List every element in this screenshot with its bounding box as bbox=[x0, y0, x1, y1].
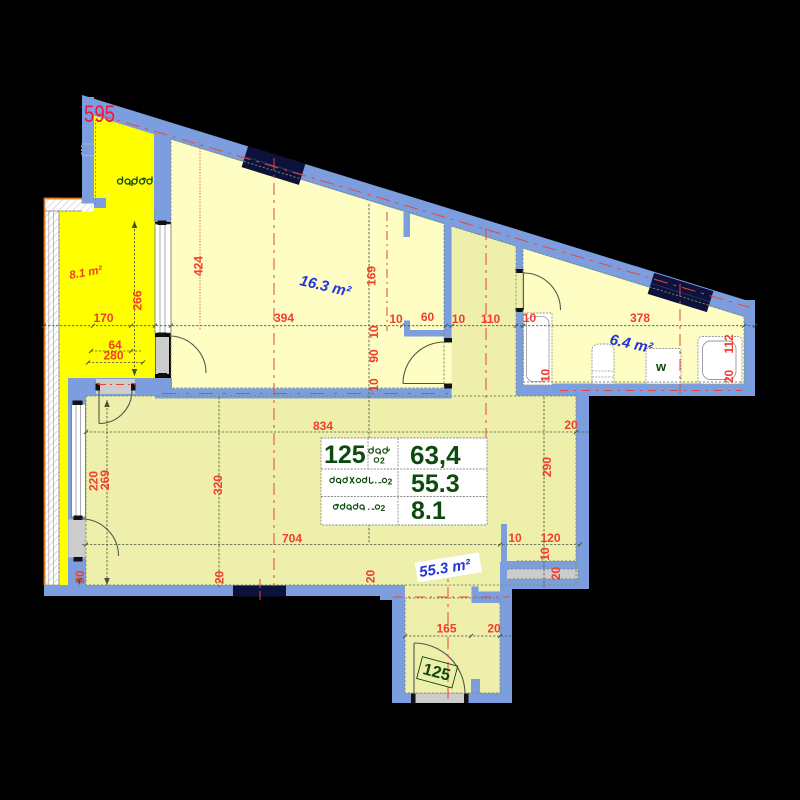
svg-text:165: 165 bbox=[436, 622, 456, 636]
svg-text:20: 20 bbox=[722, 370, 736, 384]
svg-text:10: 10 bbox=[367, 325, 381, 339]
svg-text:290: 290 bbox=[540, 457, 554, 477]
svg-text:424: 424 bbox=[192, 256, 206, 276]
svg-text:10: 10 bbox=[538, 547, 552, 561]
svg-text:394: 394 bbox=[274, 311, 294, 325]
svg-text:63,4: 63,4 bbox=[410, 440, 461, 470]
svg-text:2: 2 bbox=[388, 477, 393, 487]
svg-text:55.3: 55.3 bbox=[411, 470, 460, 498]
svg-text:10: 10 bbox=[367, 378, 381, 392]
svg-text:2: 2 bbox=[380, 456, 385, 466]
svg-text:20: 20 bbox=[564, 418, 578, 432]
svg-text:125: 125 bbox=[324, 441, 366, 469]
svg-text:8.1: 8.1 bbox=[411, 497, 446, 525]
svg-text:10: 10 bbox=[539, 369, 553, 383]
svg-text:834: 834 bbox=[313, 419, 333, 433]
svg-text:10: 10 bbox=[523, 311, 537, 325]
svg-text:266: 266 bbox=[131, 290, 145, 310]
svg-text:170: 170 bbox=[93, 311, 113, 325]
svg-text:20: 20 bbox=[549, 567, 563, 581]
svg-text:110: 110 bbox=[481, 312, 501, 326]
svg-text:112: 112 bbox=[722, 334, 736, 354]
svg-text:704: 704 bbox=[282, 532, 302, 546]
svg-text:90: 90 bbox=[367, 349, 381, 363]
svg-text:378: 378 bbox=[630, 311, 650, 325]
svg-text:269: 269 bbox=[98, 470, 112, 490]
svg-text:10: 10 bbox=[452, 312, 466, 326]
svg-text:320: 320 bbox=[211, 475, 225, 495]
svg-text:169: 169 bbox=[365, 266, 379, 286]
svg-text:10: 10 bbox=[508, 531, 522, 545]
svg-text:280: 280 bbox=[103, 349, 123, 363]
svg-text:w: w bbox=[655, 359, 667, 374]
svg-text:20: 20 bbox=[73, 570, 87, 584]
svg-text:10: 10 bbox=[389, 312, 403, 326]
svg-text:20: 20 bbox=[364, 570, 378, 584]
svg-text:20: 20 bbox=[213, 571, 227, 585]
svg-text:595: 595 bbox=[84, 101, 115, 128]
svg-text:120: 120 bbox=[540, 531, 560, 545]
svg-text:2: 2 bbox=[381, 503, 386, 513]
svg-text:60: 60 bbox=[421, 310, 435, 324]
svg-text:20: 20 bbox=[487, 622, 501, 636]
